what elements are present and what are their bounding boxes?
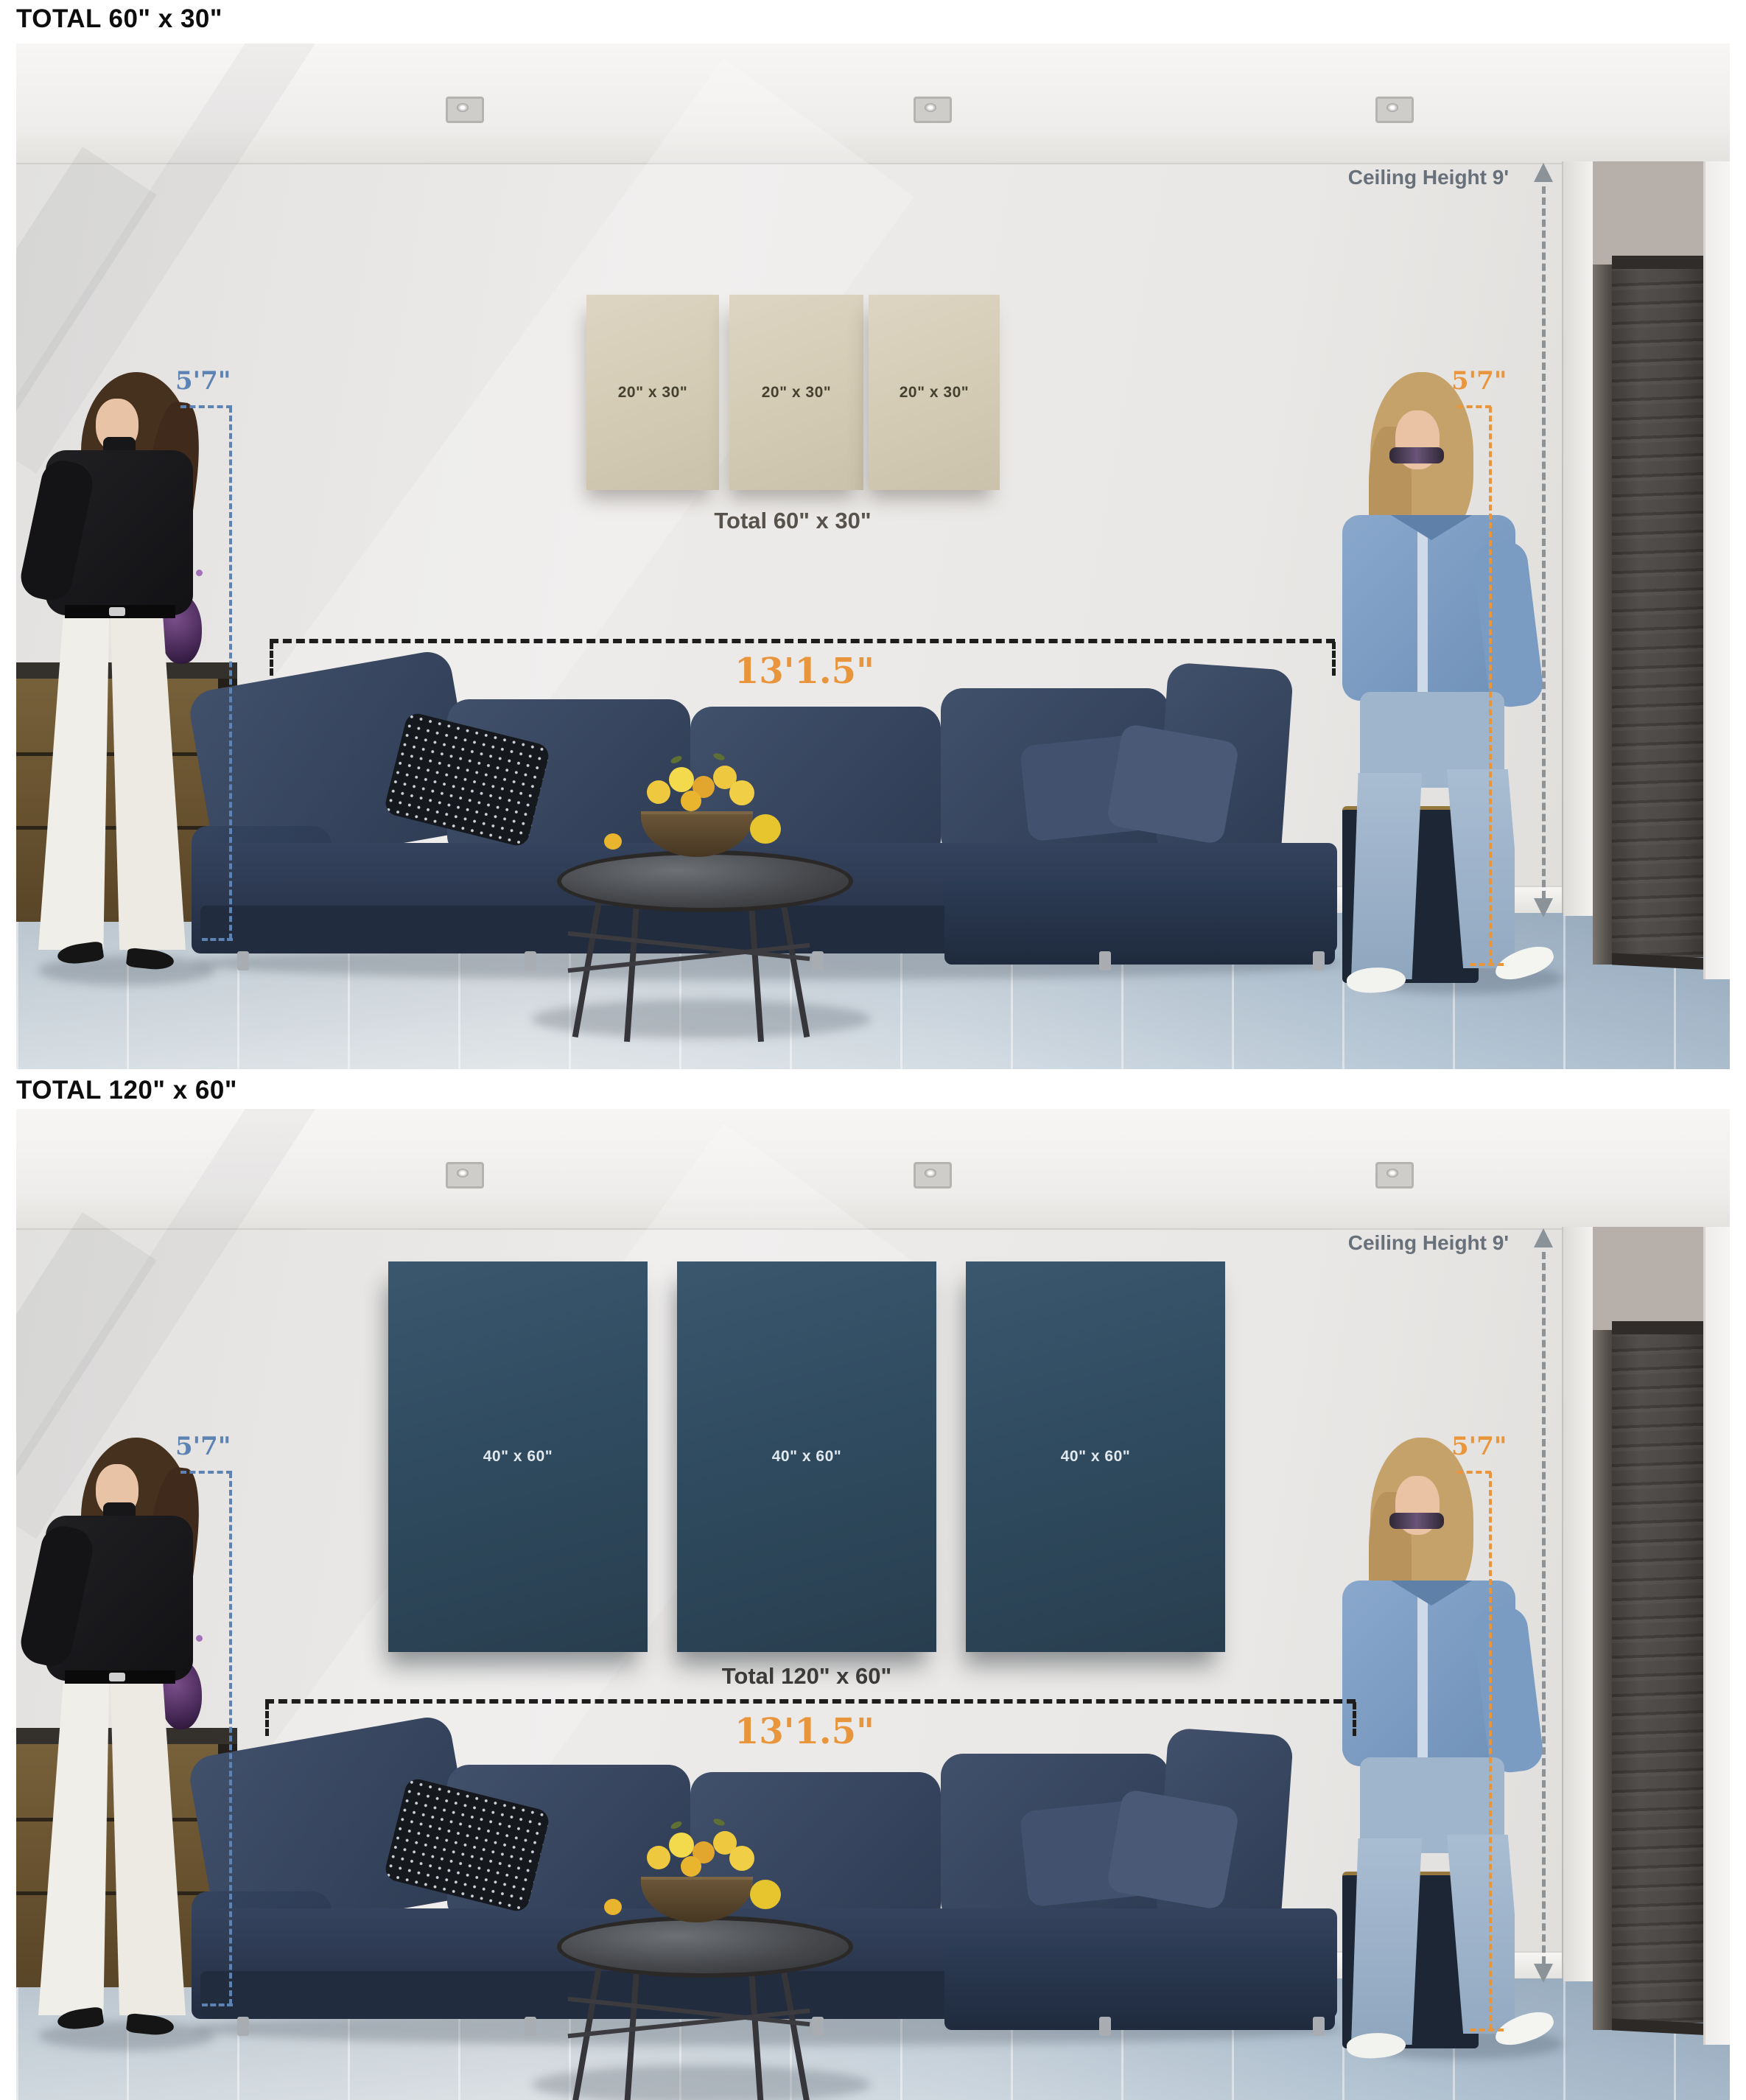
- width-dimension-label: 13'1.5": [657, 1711, 952, 1752]
- lemon: [647, 780, 670, 804]
- jacket-placket: [1417, 1586, 1428, 1762]
- width-dimension-line: [270, 639, 1335, 643]
- lemon: [604, 1899, 622, 1915]
- door-frame: [1703, 161, 1730, 979]
- lemon: [750, 814, 781, 844]
- navy-throw-pillow: [1106, 1788, 1240, 1911]
- canvas-panel-label: 20" x 30": [900, 384, 969, 402]
- right-height-label: 5'7": [1451, 366, 1507, 396]
- arrow-up-icon: [1534, 163, 1553, 182]
- lemon: [647, 1846, 670, 1869]
- left-height-label: 5'7": [175, 366, 231, 396]
- lemon: [669, 767, 694, 792]
- lemon: [681, 791, 701, 811]
- canvas-panel: 40" x 60": [388, 1261, 648, 1652]
- section-title: TOTAL 120" x 60": [16, 1076, 237, 1105]
- canvas-panel-label: 40" x 60": [772, 1448, 841, 1466]
- canvas-total-label: Total 60" x 30": [638, 508, 947, 534]
- ceiling: [16, 43, 1730, 164]
- sofa-leg: [1313, 2017, 1325, 2036]
- canvas-panel: 20" x 30": [729, 295, 863, 490]
- right-height-guide-end: [1470, 963, 1504, 966]
- lemon: [681, 1856, 701, 1877]
- sunglasses: [1389, 1513, 1444, 1529]
- door-frame-top: [1612, 256, 1703, 269]
- door-recess: [1593, 1330, 1612, 2030]
- canvas-panel-label: 20" x 30": [762, 384, 831, 402]
- arrow-down-icon: [1534, 1964, 1553, 1983]
- ceiling-height-label: Ceiling Height 9': [1348, 1231, 1509, 1255]
- ceiling-height-label: Ceiling Height 9': [1348, 166, 1509, 189]
- lemon: [604, 833, 622, 850]
- left-height-guide-corner: [180, 405, 232, 408]
- coffee-table: [557, 1916, 853, 1978]
- width-dimension-label: 13'1.5": [657, 651, 952, 692]
- sofa-leg: [237, 951, 249, 970]
- left-height-guide-end: [202, 938, 233, 941]
- hallway-column: [1563, 161, 1593, 916]
- sofa-leg: [1313, 951, 1325, 970]
- sofa-leg: [812, 951, 824, 970]
- door-recess: [1593, 265, 1612, 965]
- right-height-guide-line: [1489, 407, 1492, 965]
- lemon: [750, 1880, 781, 1909]
- width-dimension-tick: [1353, 1702, 1356, 1736]
- lemon: [669, 1833, 694, 1858]
- recessed-light-icon: [1375, 1162, 1414, 1189]
- door: [1612, 265, 1703, 957]
- section-title: TOTAL 60" x 30": [16, 4, 222, 34]
- coffee-table: [557, 850, 853, 912]
- left-height-guide-corner: [180, 1471, 232, 1474]
- canvas-total-label: Total 120" x 60": [652, 1663, 961, 1690]
- sofa-leg: [525, 951, 536, 970]
- right-woman-jeans-leg: [1351, 1838, 1422, 2045]
- lemon: [729, 1846, 754, 1871]
- sofa-leg: [812, 2017, 824, 2036]
- canvas-panel-label: 20" x 30": [618, 384, 687, 402]
- width-dimension-tick: [270, 642, 273, 676]
- left-height-label: 5'7": [175, 1432, 231, 1461]
- sofa-leg: [1099, 2017, 1111, 2036]
- size-guide-page: TOTAL 60" x 30": [0, 0, 1746, 2100]
- canvas-panel: 20" x 30": [869, 295, 1000, 490]
- arrow-up-icon: [1534, 1228, 1553, 1247]
- sunglasses: [1389, 447, 1444, 463]
- flower-sprig: [196, 1635, 203, 1642]
- canvas-panel: 20" x 30": [586, 295, 719, 490]
- right-height-label: 5'7": [1451, 1432, 1507, 1461]
- right-height-guide-corner: [1457, 405, 1491, 408]
- belt-buckle: [109, 1673, 125, 1681]
- canvas-panel-label: 40" x 60": [1061, 1448, 1130, 1466]
- recessed-light-icon: [1375, 97, 1414, 123]
- door: [1612, 1330, 1703, 2023]
- sofa-leg: [525, 2017, 536, 2036]
- right-woman-jeans-leg: [1351, 773, 1422, 979]
- recessed-light-icon: [446, 97, 484, 123]
- right-height-guide-corner: [1457, 1471, 1491, 1474]
- belt-buckle: [109, 607, 125, 616]
- width-dimension-tick: [1332, 642, 1336, 676]
- room-scene-120x60: Ceiling Height 9' 5'7" 5'7" 13'1.5" 40" …: [16, 1109, 1730, 2100]
- room-scene-60x30: Ceiling Height 9' 5'7" 5'7" 13'1.5" 20" …: [16, 43, 1730, 1069]
- jacket-placket: [1417, 521, 1428, 696]
- right-height-guide-end: [1470, 2029, 1504, 2031]
- ceiling-height-guide-line: [1542, 186, 1546, 898]
- sofa-leg: [237, 2017, 249, 2036]
- left-height-guide-end: [202, 2003, 233, 2006]
- canvas-panel-label: 40" x 60": [483, 1448, 553, 1466]
- recessed-light-icon: [914, 97, 952, 123]
- canvas-panel: 40" x 60": [966, 1261, 1225, 1652]
- arrow-down-icon: [1534, 898, 1553, 917]
- ceiling: [16, 1109, 1730, 1230]
- ceiling-height-guide-line: [1542, 1252, 1546, 1964]
- width-dimension-line: [265, 1699, 1356, 1704]
- width-dimension-tick: [265, 1702, 269, 1736]
- right-height-guide-line: [1489, 1472, 1492, 2030]
- navy-throw-pillow: [1106, 723, 1240, 845]
- left-height-guide-line: [229, 407, 232, 939]
- left-height-guide-line: [229, 1472, 232, 2005]
- sofa-chaise: [944, 1945, 1335, 2030]
- flower-sprig: [196, 570, 203, 576]
- recessed-light-icon: [914, 1162, 952, 1189]
- sofa-chaise: [944, 880, 1335, 965]
- door-frame-top: [1612, 1321, 1703, 1334]
- lemon: [729, 780, 754, 805]
- hallway-column: [1563, 1227, 1593, 1981]
- sofa-leg: [1099, 951, 1111, 970]
- canvas-panel: 40" x 60": [677, 1261, 936, 1652]
- recessed-light-icon: [446, 1162, 484, 1189]
- door-frame: [1703, 1227, 1730, 2045]
